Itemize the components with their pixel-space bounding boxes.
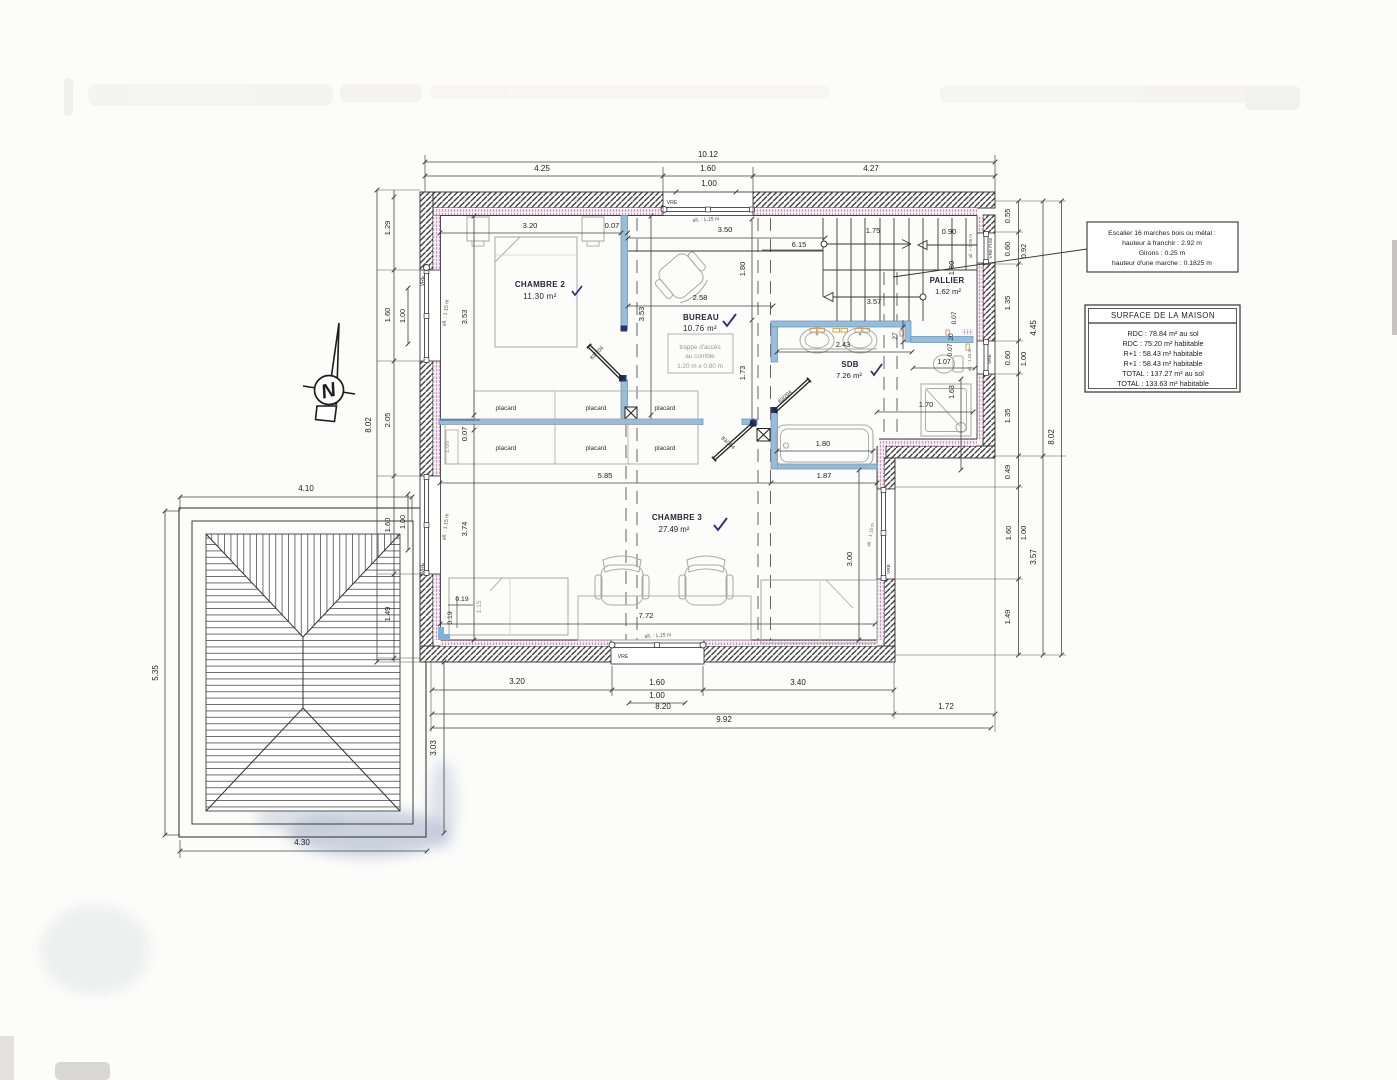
svg-text:0.60: 0.60 [1003, 351, 1012, 366]
svg-text:10.76 m²: 10.76 m² [683, 324, 717, 333]
svg-text:8.02: 8.02 [364, 417, 373, 433]
svg-text:Escalier 16 marches bois ou mé: Escalier 16 marches bois ou métal : [1108, 230, 1216, 237]
svg-text:3.53: 3.53 [460, 310, 469, 325]
svg-text:TOTAL : 137.27 m² au sol: TOTAL : 137.27 m² au sol [1122, 369, 1204, 378]
svg-text:SDB: SDB [841, 360, 858, 369]
svg-text:1.00: 1.00 [1019, 352, 1028, 366]
svg-text:VRE: VRE [667, 200, 678, 206]
svg-text:3.00: 3.00 [845, 552, 854, 567]
svg-text:TOTAL : 133.63 m² habitable: TOTAL : 133.63 m² habitable [1117, 379, 1209, 388]
svg-text:1.87: 1.87 [817, 471, 832, 480]
svg-text:1.60: 1.60 [700, 164, 716, 173]
svg-text:1.73: 1.73 [738, 366, 747, 380]
svg-text:placard: placard [586, 445, 607, 452]
svg-text:SURFACE DE LA MAISON: SURFACE DE LA MAISON [1111, 311, 1215, 320]
svg-text:0.90: 0.90 [942, 227, 956, 236]
svg-text:1.80: 1.80 [816, 439, 830, 448]
svg-text:1.15: 1.15 [476, 600, 483, 613]
svg-text:R+1 : 58.43 m² habitable: R+1 : 58.43 m² habitable [1124, 359, 1203, 368]
svg-text:hauteur d'une marche : 0.1825: hauteur d'une marche : 0.1825 m [1112, 260, 1212, 267]
svg-text:2.58: 2.58 [693, 293, 708, 302]
svg-text:9.92: 9.92 [716, 715, 732, 724]
svg-text:1.00: 1.00 [649, 691, 665, 700]
svg-text:4.25: 4.25 [534, 164, 550, 173]
svg-text:RDC : 78.84 m² au sol: RDC : 78.84 m² au sol [1127, 329, 1199, 338]
svg-text:placard: placard [496, 445, 517, 452]
svg-text:1.35: 1.35 [1003, 296, 1012, 311]
svg-text:0.55: 0.55 [1003, 209, 1012, 224]
svg-text:1.70: 1.70 [919, 400, 933, 409]
svg-text:R+1 : 58.43 m² habitable: R+1 : 58.43 m² habitable [1124, 349, 1203, 358]
svg-text:1.00: 1.00 [398, 309, 407, 323]
svg-text:1.00: 1.00 [398, 515, 407, 529]
svg-text:8.02: 8.02 [1047, 429, 1056, 445]
svg-text:4.27: 4.27 [863, 164, 879, 173]
svg-text:CHAMBRE 2: CHAMBRE 2 [515, 280, 566, 289]
svg-text:1.00: 1.00 [701, 179, 717, 188]
svg-text:3.57: 3.57 [867, 297, 881, 306]
svg-text:placard: placard [655, 445, 676, 452]
svg-text:0.92: 0.92 [1019, 244, 1028, 258]
svg-text:1.63: 1.63 [949, 385, 956, 399]
svg-text:placard: placard [496, 405, 517, 412]
svg-text:4.10: 4.10 [298, 484, 314, 493]
svg-text:1.07: 1.07 [937, 359, 951, 366]
svg-text:VRE: VRE [420, 275, 426, 286]
svg-text:1.72: 1.72 [938, 702, 954, 711]
svg-text:RDC : 75.20 m² habitable: RDC : 75.20 m² habitable [1122, 339, 1203, 348]
svg-text:VRE: VRE [987, 354, 993, 364]
svg-text:3.50: 3.50 [718, 225, 733, 234]
svg-text:3.03: 3.03 [429, 740, 438, 756]
svg-text:3.57: 3.57 [1029, 549, 1038, 565]
svg-text:7.72: 7.72 [639, 611, 654, 620]
svg-text:1.29: 1.29 [383, 221, 392, 236]
svg-text:placard: placard [586, 405, 607, 412]
svg-text:4.45: 4.45 [1029, 320, 1038, 336]
svg-text:5.35: 5.35 [151, 665, 160, 681]
svg-text:0.07: 0.07 [951, 311, 958, 324]
svg-text:1.49: 1.49 [383, 607, 392, 622]
svg-text:1.75: 1.75 [866, 226, 880, 235]
svg-text:7.26 m²: 7.26 m² [836, 371, 862, 380]
svg-text:27: 27 [892, 332, 899, 340]
svg-text:VRE: VRE [618, 654, 629, 660]
svg-text:0.07: 0.07 [460, 427, 469, 441]
svg-text:3.20: 3.20 [509, 677, 525, 686]
svg-text:1.62 m²: 1.62 m² [935, 287, 961, 296]
svg-text:1.60: 1.60 [649, 678, 665, 687]
svg-text:PALLIER: PALLIER [930, 276, 965, 285]
svg-text:2.43: 2.43 [836, 340, 850, 349]
svg-text:1.49: 1.49 [1003, 610, 1012, 625]
svg-text:6.15: 6.15 [792, 240, 806, 249]
svg-text:1.60: 1.60 [383, 308, 392, 323]
svg-text:2.05: 2.05 [383, 413, 392, 428]
svg-text:CHAMBRE 3: CHAMBRE 3 [652, 513, 703, 522]
svg-text:11.30 m²: 11.30 m² [523, 292, 556, 301]
svg-text:BUREAU: BUREAU [683, 313, 719, 322]
svg-text:0.07: 0.07 [605, 221, 620, 230]
svg-text:0.19: 0.19 [455, 596, 468, 603]
svg-text:0.19: 0.19 [447, 611, 454, 624]
svg-text:VRE FIXE: VRE FIXE [988, 238, 993, 259]
svg-text:au comble: au comble [685, 353, 715, 360]
svg-text:1.00: 1.00 [444, 440, 451, 453]
svg-text:1.60: 1.60 [1004, 526, 1013, 541]
svg-text:5.85: 5.85 [598, 471, 613, 480]
svg-text:1.20 m x 0.80 m: 1.20 m x 0.80 m [677, 363, 723, 370]
svg-text:8.20: 8.20 [655, 702, 671, 711]
svg-text:1.80: 1.80 [738, 262, 747, 276]
svg-text:27.49 m²: 27.49 m² [659, 525, 690, 534]
svg-text:0.49: 0.49 [1003, 465, 1012, 480]
svg-text:1.60: 1.60 [383, 518, 392, 533]
svg-text:1.35: 1.35 [1003, 409, 1012, 424]
svg-text:hauteur à franchir : 2.92 m: hauteur à franchir : 2.92 m [1122, 240, 1202, 247]
svg-text:0.07: 0.07 [947, 343, 954, 356]
svg-text:10.12: 10.12 [698, 150, 719, 159]
svg-text:VRE: VRE [886, 564, 892, 574]
svg-text:all. + 0.95 m: all. + 0.95 m [968, 234, 973, 258]
svg-text:0.60: 0.60 [1003, 242, 1012, 257]
svg-text:placard: placard [655, 405, 676, 412]
svg-text:3.74: 3.74 [460, 522, 469, 537]
svg-text:4.30: 4.30 [294, 838, 310, 847]
svg-text:1.00: 1.00 [1019, 526, 1028, 540]
svg-text:3.40: 3.40 [790, 678, 806, 687]
svg-text:20: 20 [948, 333, 955, 341]
svg-text:trappe d'accès: trappe d'accès [679, 344, 720, 351]
svg-text:3.20: 3.20 [523, 221, 538, 230]
svg-text:Girons : 0.25 m: Girons : 0.25 m [1139, 250, 1186, 257]
svg-text:3.53: 3.53 [637, 307, 646, 322]
svg-text:VRE: VRE [420, 562, 426, 573]
